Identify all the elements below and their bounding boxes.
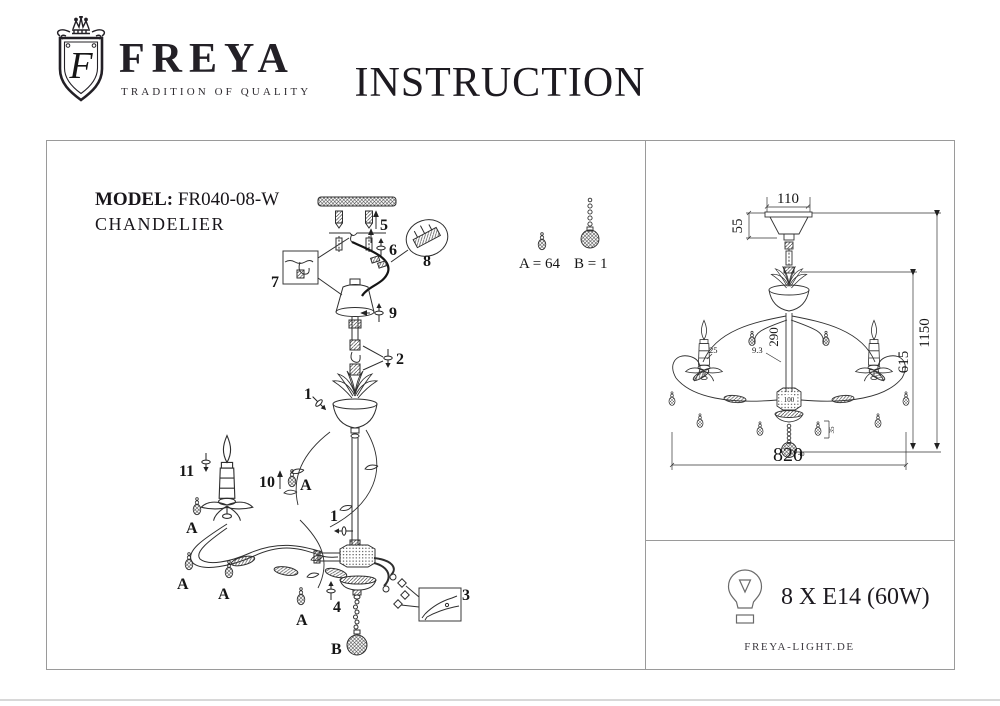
bottom-dish (340, 576, 376, 599)
crystal-label-a: A (177, 576, 189, 593)
crystal-pendant (185, 553, 193, 570)
upper-bowl (333, 399, 377, 438)
dim-canopy-width: 110 (777, 191, 799, 207)
exploded-assembly-diagram: 5 6 8 7 9 2 1 11 10 1 3 4 A A A A A B (130, 185, 480, 670)
screw-turn-icon (375, 303, 383, 322)
step-label-10: 10 (259, 474, 275, 491)
step-label-6: 6 (389, 242, 397, 259)
crystal-label-a: A (218, 586, 230, 603)
dim-total-width: 820 (773, 444, 803, 466)
step-label-2: 2 (396, 351, 404, 368)
crystal-pendant (193, 498, 201, 515)
dim-body-height: 615 (896, 351, 912, 374)
dim-chain (784, 242, 794, 273)
dim-candle-dia: 25 (709, 345, 718, 355)
crystal-a-icon (538, 233, 546, 250)
dim-pendant-size: 35 (828, 426, 836, 434)
step-label-1b: 1 (330, 508, 338, 525)
crystal-legend: A = 64 B = 1 (505, 190, 635, 280)
dim-center-rod (786, 313, 792, 392)
pliers-icon (422, 596, 459, 620)
crystal-pendant (749, 331, 755, 345)
crystal-pendant (697, 414, 703, 428)
center-rod (352, 438, 358, 545)
dimension-diagram: 110 55 290 9.3 25 100 35 40 615 1150 820 (655, 185, 955, 485)
arm-scroll (191, 524, 348, 580)
page-bottom-edge (0, 699, 1000, 701)
crystal-pendant (669, 392, 675, 406)
step-label-11: 11 (179, 463, 194, 480)
screw-turn-icon (202, 453, 210, 472)
step-label-9: 9 (389, 305, 397, 322)
website-text: FREYA-LIGHT.DE (645, 641, 954, 653)
candle (201, 436, 253, 521)
dim-hub-dia: 100 (784, 396, 795, 404)
step-label-3: 3 (462, 587, 470, 604)
dim-leaf-size: 9.3 (752, 345, 763, 355)
pliers-inset (419, 588, 461, 621)
dim-bowl (769, 285, 809, 311)
dim-upper-arms (703, 316, 875, 362)
legend-b-count: B = 1 (574, 256, 607, 272)
crystal-pendant (823, 331, 829, 345)
crystal-label-a: A (300, 477, 312, 494)
dim-canopy-height: 55 (730, 219, 746, 234)
screw-turn-icon (334, 527, 353, 535)
bulb-spec-text: 8 X E14 (60W) (781, 584, 930, 611)
terminal-block (371, 256, 387, 268)
arm-hub (314, 540, 375, 567)
ceiling-strap (318, 197, 396, 206)
crystal-ball-chain (347, 600, 367, 655)
step-label-4: 4 (333, 599, 341, 616)
panel-divider (645, 140, 646, 669)
dim-dish (775, 411, 803, 423)
mount-screws (336, 211, 373, 228)
bulb-icon (724, 567, 768, 631)
crystal-label-a: A (296, 612, 308, 629)
crystal-pendant (815, 422, 821, 436)
spec-divider (646, 540, 954, 541)
screw-turn-icon (310, 394, 329, 413)
canopy (336, 279, 374, 317)
step-label-5: 5 (380, 217, 388, 234)
crystal-pendant (875, 414, 881, 428)
instruction-sheet-page: F FREYA TRADITION OF QUALITY INSTRUCTION… (0, 0, 1000, 706)
terminal-detail-callout (391, 214, 453, 262)
step-label-8: 8 (423, 253, 431, 270)
dim-canopy (765, 212, 812, 240)
crystal-label-b: B (331, 641, 342, 658)
step-label-1: 1 (304, 386, 312, 403)
step-label-7: 7 (271, 274, 279, 291)
dim-total-height: 1150 (917, 318, 933, 347)
page-title: INSTRUCTION (0, 62, 1000, 104)
crystal-pendant (297, 588, 305, 605)
dim-rod-length: 290 (766, 327, 781, 347)
rod-connectors (350, 340, 383, 375)
screw-turn-icon (384, 349, 392, 368)
hub-wires (374, 558, 419, 608)
crystal-pendant (288, 470, 296, 487)
dimension-lines (670, 197, 941, 470)
crystal-label-a: A (186, 520, 198, 537)
crystal-pendant (903, 392, 909, 406)
legend-a-count: A = 64 (519, 256, 560, 272)
hook-detail-inset (283, 238, 349, 295)
screw-turn-icon (327, 581, 335, 600)
crystal-pendant (757, 422, 763, 436)
crystal-b-icon (581, 198, 599, 248)
